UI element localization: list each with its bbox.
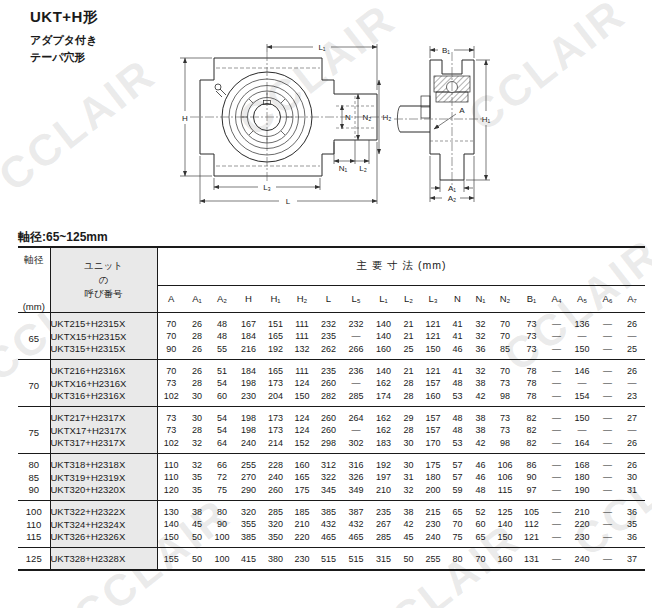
dimension-value-cell: — bbox=[596, 484, 619, 501]
table-group: 65UKT215+H2315X7026481671511112322321402… bbox=[18, 313, 645, 360]
unit-number-cell: UKT318+H2318X bbox=[50, 454, 157, 471]
table-row: 115UKT326+H2326X150501003853502204654652… bbox=[18, 531, 645, 548]
catalog-page: CCLAIR CCLAIR CCLAIR CCLAIR CCLAIR CCLAI… bbox=[0, 0, 652, 608]
dimension-value-cell: 260 bbox=[262, 484, 289, 501]
unit-number-cell: UKT215+H2315X bbox=[50, 313, 157, 330]
dimension-value-cell: 235 bbox=[370, 501, 397, 518]
dimension-value-cell: 55 bbox=[209, 343, 235, 360]
dim-column-header: A₅ bbox=[568, 285, 596, 312]
dimension-value-cell: 38 bbox=[397, 501, 420, 518]
dimension-value-cell: — bbox=[545, 376, 568, 390]
dimension-value-cell: 151 bbox=[262, 313, 289, 330]
dimension-value-cell: 70 bbox=[492, 360, 518, 377]
dimension-value-cell: 236 bbox=[342, 360, 370, 377]
dimension-value-cell: 125 bbox=[492, 501, 518, 518]
dimension-value-cell: 215 bbox=[420, 501, 446, 518]
dimension-value-cell: 57 bbox=[446, 454, 469, 471]
dimension-value-cell: 160 bbox=[492, 548, 518, 571]
table-row: UKT317+H2317X102326424021415229830218330… bbox=[18, 437, 645, 454]
dimension-value-cell: — bbox=[596, 548, 619, 571]
dimension-value-cell: 50 bbox=[397, 548, 420, 571]
dimension-value-cell: 102 bbox=[157, 437, 185, 454]
dimension-value-cell: 100 bbox=[209, 548, 235, 571]
dimension-value-cell: 73 bbox=[518, 329, 545, 343]
table-row: 80UKT318+H2318X1103266255228160312316192… bbox=[18, 454, 645, 471]
dimension-value-cell: — bbox=[545, 313, 568, 330]
shaft-diameter-cell: 80 bbox=[18, 454, 50, 471]
dimension-value-cell: 326 bbox=[342, 470, 370, 484]
dimension-value-cell: 73 bbox=[157, 407, 185, 424]
table-row: 110UKT324+H2324X140459035532021043243226… bbox=[18, 517, 645, 531]
dimension-value-cell: 302 bbox=[342, 437, 370, 454]
dimension-value-cell: 90 bbox=[157, 343, 185, 360]
dimension-value-cell: 131 bbox=[518, 548, 545, 571]
dimension-value-cell: — bbox=[596, 376, 619, 390]
dimension-value-cell: — bbox=[545, 407, 568, 424]
dimension-value-cell: 285 bbox=[342, 390, 370, 407]
dimension-value-cell: 322 bbox=[315, 470, 342, 484]
dimension-value-cell: 82 bbox=[518, 423, 545, 437]
unit-number-cell: UKTX17+H2317X bbox=[50, 423, 157, 437]
page-subtitle-adapter: アダプタ付き bbox=[30, 33, 97, 48]
dimension-value-cell: 216 bbox=[235, 343, 262, 360]
dimension-value-cell: 152 bbox=[289, 437, 315, 454]
dim-column-header: A₁ bbox=[185, 285, 209, 312]
dimension-value-cell: 162 bbox=[370, 376, 397, 390]
dimension-value-cell: 198 bbox=[235, 423, 262, 437]
shaft-diameter-cell: 100 bbox=[18, 501, 50, 518]
dimension-value-cell: 25 bbox=[397, 343, 420, 360]
dimension-value-cell: 184 bbox=[235, 360, 262, 377]
dim-column-header: H bbox=[235, 285, 262, 312]
dimension-value-cell: 90 bbox=[209, 517, 235, 531]
dim-label-h2: H₂ bbox=[383, 113, 392, 122]
dimension-value-cell: — bbox=[596, 407, 619, 424]
dimension-value-cell: — bbox=[596, 423, 619, 437]
dimension-value-cell: 54 bbox=[209, 423, 235, 437]
dimension-value-cell: 214 bbox=[262, 437, 289, 454]
table-row: UKTX15+H2315X702848184165111235—14021121… bbox=[18, 329, 645, 343]
dimension-value-cell: — bbox=[545, 390, 568, 407]
dimension-value-cell: 235 bbox=[315, 360, 342, 377]
dimension-value-cell: 173 bbox=[262, 423, 289, 437]
dim-label-n: N bbox=[345, 113, 351, 122]
dimension-value-cell: 260 bbox=[315, 423, 342, 437]
shaft-diameter-cell: 90 bbox=[18, 484, 50, 501]
dimension-value-cell: 432 bbox=[315, 517, 342, 531]
dim-column-header: B₁ bbox=[518, 285, 545, 312]
table-row: 90UKT320+H2320X1203575290260175345349210… bbox=[18, 484, 645, 501]
dimension-value-cell: 167 bbox=[235, 313, 262, 330]
shaft-diameter-column-header: 軸径 (mm) bbox=[18, 247, 50, 313]
dim-column-header: H₁ bbox=[262, 285, 289, 312]
dimension-value-cell: 60 bbox=[469, 517, 492, 531]
dimension-value-cell: 25 bbox=[619, 343, 645, 360]
dimension-value-cell: 140 bbox=[370, 329, 397, 343]
dimension-value-cell: — bbox=[342, 376, 370, 390]
dimension-value-cell: — bbox=[568, 423, 596, 437]
dimension-value-cell: — bbox=[545, 360, 568, 377]
dimension-value-cell: 64 bbox=[209, 437, 235, 454]
dimension-value-cell: 42 bbox=[469, 390, 492, 407]
table-group: 70UKT216+H2316X7026511841651112352361402… bbox=[18, 360, 645, 407]
dimension-value-cell: 230 bbox=[289, 548, 315, 571]
dimension-value-cell: 66 bbox=[209, 454, 235, 471]
dimension-value-cell: 197 bbox=[370, 470, 397, 484]
dimension-value-cell: 100 bbox=[209, 531, 235, 548]
dimension-value-cell: 232 bbox=[342, 313, 370, 330]
dim-column-header: L₁ bbox=[370, 285, 397, 312]
dimension-value-cell: 41 bbox=[446, 360, 469, 377]
dimension-value-cell: 90 bbox=[518, 470, 545, 484]
dimension-value-cell: 140 bbox=[157, 517, 185, 531]
dimension-value-cell: 316 bbox=[342, 454, 370, 471]
dimension-value-cell: 73 bbox=[492, 423, 518, 437]
unit-number-cell: UKTX15+H2315X bbox=[50, 329, 157, 343]
dimension-value-cell: 465 bbox=[315, 531, 342, 548]
dimension-value-cell: 26 bbox=[185, 360, 209, 377]
dimension-value-cell: 121 bbox=[420, 360, 446, 377]
dimension-table: 軸径 (mm) ユニット の 呼び番号 主 要 寸 法 (mm) AA₁A₂HH… bbox=[18, 246, 645, 571]
page-title: UKT+H形 bbox=[30, 8, 98, 27]
dimension-value-cell: 73 bbox=[492, 407, 518, 424]
table-row: 85UKT319+H2319X1103572270240165322326197… bbox=[18, 470, 645, 484]
dimension-value-cell: 432 bbox=[342, 517, 370, 531]
dim-column-header: H₂ bbox=[289, 285, 315, 312]
unit-number-cell: UKT319+H2319X bbox=[50, 470, 157, 484]
table-row: UKT316+H2316X102306023020415028228517428… bbox=[18, 390, 645, 407]
dimension-value-cell: 48 bbox=[469, 484, 492, 501]
dimension-value-cell: — bbox=[545, 437, 568, 454]
dimension-value-cell: 255 bbox=[420, 548, 446, 571]
dimension-value-cell: 168 bbox=[568, 454, 596, 471]
dimension-value-cell: 31 bbox=[397, 470, 420, 484]
dimension-value-cell: 38 bbox=[469, 376, 492, 390]
dimension-value-cell: 73 bbox=[157, 423, 185, 437]
dimension-value-cell: 111 bbox=[289, 329, 315, 343]
dimension-value-cell: 51 bbox=[209, 360, 235, 377]
dimension-value-cell: 180 bbox=[420, 470, 446, 484]
dimension-value-cell: — bbox=[545, 329, 568, 343]
dimension-value-cell: — bbox=[545, 531, 568, 548]
dimension-value-cell: 29 bbox=[397, 407, 420, 424]
dimension-value-cell: 155 bbox=[157, 548, 185, 571]
dimension-value-cell: 38 bbox=[469, 423, 492, 437]
shaft-diameter-range-heading: 軸径:65~125mm bbox=[18, 229, 108, 246]
dimension-value-cell: 82 bbox=[518, 437, 545, 454]
dimension-value-cell: — bbox=[545, 470, 568, 484]
main-dimensions-header: 主 要 寸 法 (mm) bbox=[157, 247, 645, 285]
dimension-value-cell: 160 bbox=[289, 454, 315, 471]
dimension-value-cell: 42 bbox=[469, 437, 492, 454]
dimension-value-cell: 121 bbox=[420, 329, 446, 343]
dimension-value-cell: 130 bbox=[157, 501, 185, 518]
table-row: 125UKT328+H2328X155501004153802305155153… bbox=[18, 548, 645, 571]
dimension-value-cell: 28 bbox=[185, 423, 209, 437]
dimension-value-cell: 106 bbox=[492, 454, 518, 471]
dimension-value-cell: 210 bbox=[370, 484, 397, 501]
dimension-value-cell: 262 bbox=[315, 343, 342, 360]
dimension-value-cell: 70 bbox=[446, 517, 469, 531]
dimension-value-cell: 48 bbox=[446, 423, 469, 437]
table-row: UKTX17+H2317X732854198173124260—16228157… bbox=[18, 423, 645, 437]
dimension-value-cell: 48 bbox=[446, 407, 469, 424]
dimension-value-cell: 110 bbox=[157, 454, 185, 471]
dimension-value-cell: 21 bbox=[397, 360, 420, 377]
dim-label-n2: N₂ bbox=[363, 113, 372, 122]
dimension-value-cell: 35 bbox=[619, 517, 645, 531]
dimension-value-cell: 173 bbox=[262, 407, 289, 424]
table-row: 70UKT216+H2316X7026511841651112352361402… bbox=[18, 360, 645, 377]
dimension-value-cell: 60 bbox=[209, 390, 235, 407]
unit-number-cell: UKT216+H2316X bbox=[50, 360, 157, 377]
dimension-value-cell: — bbox=[596, 531, 619, 548]
dimension-value-cell: — bbox=[596, 390, 619, 407]
shaft-diameter-cell: 65 bbox=[18, 313, 50, 360]
dimension-value-cell: 30 bbox=[185, 407, 209, 424]
dimension-value-cell: — bbox=[568, 329, 596, 343]
dimension-value-cell: 240 bbox=[235, 437, 262, 454]
dimension-value-cell: 73 bbox=[492, 376, 518, 390]
dimension-value-cell: 85 bbox=[492, 343, 518, 360]
dimension-value-cell: 78 bbox=[518, 376, 545, 390]
dimension-value-cell: 150 bbox=[568, 343, 596, 360]
shaft-diameter-cell: 75 bbox=[18, 407, 50, 454]
dimension-value-cell: 36 bbox=[619, 501, 645, 518]
dimension-value-cell: 23 bbox=[619, 390, 645, 407]
dimension-value-cell: 48 bbox=[209, 313, 235, 330]
shaft-diameter-cell: 85 bbox=[18, 470, 50, 484]
dim-column-header: A₄ bbox=[545, 285, 568, 312]
dimension-value-cell: 465 bbox=[342, 531, 370, 548]
dimension-value-cell: 54 bbox=[209, 376, 235, 390]
dimension-value-cell: 70 bbox=[492, 329, 518, 343]
dimension-value-cell: 110 bbox=[157, 470, 185, 484]
dimension-value-cell: 345 bbox=[315, 484, 342, 501]
dimension-value-cell: 132 bbox=[289, 343, 315, 360]
dimension-value-cell: 170 bbox=[420, 437, 446, 454]
dimension-value-cell: 320 bbox=[262, 517, 289, 531]
dimension-value-cell: 72 bbox=[209, 470, 235, 484]
dimension-value-cell: — bbox=[619, 329, 645, 343]
dimension-value-cell: 154 bbox=[568, 390, 596, 407]
dimension-value-cell: 282 bbox=[315, 390, 342, 407]
dimension-value-cell: — bbox=[545, 423, 568, 437]
dimension-value-cell: 106 bbox=[492, 470, 518, 484]
dimension-value-cell: 26 bbox=[185, 313, 209, 330]
unit-number-cell: UKT326+H2326X bbox=[50, 531, 157, 548]
dimension-value-cell: — bbox=[545, 548, 568, 571]
dimension-value-cell: 355 bbox=[235, 517, 262, 531]
dimension-value-cell: 157 bbox=[420, 376, 446, 390]
dimension-value-cell: 48 bbox=[446, 376, 469, 390]
table-group: 80UKT318+H2318X1103266255228160312316192… bbox=[18, 454, 645, 501]
dimension-value-cell: 140 bbox=[370, 360, 397, 377]
dimension-value-cell: 80 bbox=[209, 501, 235, 518]
dimension-value-cell: 266 bbox=[342, 343, 370, 360]
dimension-value-cell: 230 bbox=[235, 390, 262, 407]
dim-column-header: A₂ bbox=[209, 285, 235, 312]
dimension-value-cell: 260 bbox=[315, 376, 342, 390]
page-subtitle-taper-bore: テーパ穴形 bbox=[30, 50, 86, 65]
dimension-value-cell: 200 bbox=[420, 484, 446, 501]
dimension-value-cell: 70 bbox=[157, 313, 185, 330]
dimension-value-cell: 21 bbox=[397, 329, 420, 343]
dimension-value-cell: 28 bbox=[397, 423, 420, 437]
shaft-diameter-cell: 70 bbox=[18, 360, 50, 407]
dimension-value-cell: 285 bbox=[370, 531, 397, 548]
dimension-value-cell: 26 bbox=[619, 454, 645, 471]
dimension-value-cell: 48 bbox=[209, 329, 235, 343]
dimension-value-cell: 75 bbox=[209, 484, 235, 501]
dimension-value-cell: 32 bbox=[185, 437, 209, 454]
shaft-diameter-cell: 115 bbox=[18, 531, 50, 548]
dim-label-h1: H₁ bbox=[482, 115, 491, 124]
dimension-value-cell: 515 bbox=[342, 548, 370, 571]
dimension-value-cell: 70 bbox=[157, 329, 185, 343]
dimension-value-cell: 32 bbox=[469, 313, 492, 330]
dimension-value-cell: 32 bbox=[185, 454, 209, 471]
dim-label-a: A bbox=[459, 106, 465, 115]
dimension-value-cell: 140 bbox=[370, 313, 397, 330]
dim-label-l: L bbox=[286, 197, 291, 206]
dimension-value-cell: 54 bbox=[209, 407, 235, 424]
dimension-value-cell: 173 bbox=[262, 376, 289, 390]
dim-column-header: L₂ bbox=[397, 285, 420, 312]
dimension-value-cell: 28 bbox=[185, 329, 209, 343]
table-row: 75UKT217+H2317X7330541981731242602641622… bbox=[18, 407, 645, 424]
unit-number-cell: UKT328+H2328X bbox=[50, 548, 157, 571]
dimension-value-cell: — bbox=[342, 329, 370, 343]
dimension-value-cell: 45 bbox=[185, 517, 209, 531]
dimension-value-cell: 30 bbox=[619, 470, 645, 484]
dimension-value-cell: — bbox=[596, 437, 619, 454]
side-dimensions bbox=[430, 46, 490, 202]
dimension-value-cell: 112 bbox=[518, 517, 545, 531]
dimension-value-cell: 267 bbox=[370, 517, 397, 531]
dimension-value-cell: 150 bbox=[157, 531, 185, 548]
dimension-value-cell: 75 bbox=[446, 531, 469, 548]
dim-label-a1: A₁ bbox=[448, 184, 456, 193]
shaft-diameter-cell: 125 bbox=[18, 548, 50, 571]
dim-label-l3: L₃ bbox=[263, 183, 271, 192]
dimension-value-cell: 240 bbox=[262, 470, 289, 484]
dim-column-header: L₅ bbox=[342, 285, 370, 312]
dim-label-h: H bbox=[182, 114, 188, 123]
dimension-value-cell: 150 bbox=[568, 407, 596, 424]
dimension-value-cell: — bbox=[619, 423, 645, 437]
dimension-value-cell: 78 bbox=[518, 360, 545, 377]
table-group: 125UKT328+H2328X155501004153802305155153… bbox=[18, 548, 645, 571]
dimension-value-cell: 230 bbox=[420, 517, 446, 531]
dimension-value-cell: 65 bbox=[469, 531, 492, 548]
dimension-value-cell: 174 bbox=[370, 390, 397, 407]
dimension-value-cell: — bbox=[596, 470, 619, 484]
dimension-value-cell: 320 bbox=[235, 501, 262, 518]
table-row: 65UKT215+H2315X7026481671511112322321402… bbox=[18, 313, 645, 330]
dimension-value-cell: 105 bbox=[518, 501, 545, 518]
dimension-value-cell: 255 bbox=[235, 454, 262, 471]
dimension-value-cell: 50 bbox=[185, 548, 209, 571]
unit-number-cell: UKT322+H2322X bbox=[50, 501, 157, 518]
dimension-value-cell: 70 bbox=[157, 360, 185, 377]
dim-column-header: L bbox=[315, 285, 342, 312]
dimension-value-cell: 160 bbox=[420, 390, 446, 407]
dimension-value-cell: 230 bbox=[568, 531, 596, 548]
dimension-value-cell: 45 bbox=[397, 531, 420, 548]
dimension-value-cell: 35 bbox=[185, 484, 209, 501]
dimension-value-cell: 240 bbox=[568, 548, 596, 571]
side-centerlines bbox=[394, 52, 484, 188]
dimension-value-cell: 315 bbox=[370, 548, 397, 571]
dimension-value-cell: 111 bbox=[289, 313, 315, 330]
unit-label: ユニット bbox=[84, 260, 123, 271]
dimension-value-cell: 41 bbox=[446, 313, 469, 330]
dimension-value-cell: 31 bbox=[619, 484, 645, 501]
dimension-value-cell: 80 bbox=[446, 548, 469, 571]
dimension-value-cell: 98 bbox=[492, 437, 518, 454]
dimension-value-cell: 165 bbox=[262, 360, 289, 377]
dimension-value-cell: 30 bbox=[397, 454, 420, 471]
dimension-value-cell: 30 bbox=[185, 390, 209, 407]
dimension-value-cell: 198 bbox=[235, 407, 262, 424]
dimension-value-cell: — bbox=[568, 376, 596, 390]
dim-column-header: N₁ bbox=[469, 285, 492, 312]
table-row: UKTX16+H2316X732854198173124260—16228157… bbox=[18, 376, 645, 390]
unit-number-cell: UKT217+H2317X bbox=[50, 407, 157, 424]
dimension-value-cell: 210 bbox=[289, 517, 315, 531]
dimension-value-cell: 50 bbox=[185, 531, 209, 548]
dimension-value-cell: 26 bbox=[185, 343, 209, 360]
dimension-value-cell: — bbox=[545, 343, 568, 360]
dimension-value-cell: 28 bbox=[185, 376, 209, 390]
dimension-value-cell: — bbox=[596, 454, 619, 471]
dimension-value-cell: 380 bbox=[262, 548, 289, 571]
dimension-value-cell: 37 bbox=[619, 548, 645, 571]
dimension-value-cell: 124 bbox=[289, 423, 315, 437]
dimension-value-cell: — bbox=[596, 313, 619, 330]
dim-label-a2: A₂ bbox=[448, 194, 456, 203]
dimension-value-cell: 42 bbox=[397, 517, 420, 531]
dimension-value-cell: 184 bbox=[235, 329, 262, 343]
dimension-value-cell: 124 bbox=[289, 407, 315, 424]
technical-drawing: L₁ H N N₂ H₂ N₁ L₂ L₃ L bbox=[172, 28, 512, 226]
dimension-value-cell: 350 bbox=[262, 531, 289, 548]
dimension-value-cell: 82 bbox=[518, 407, 545, 424]
dimension-value-cell: 35 bbox=[185, 470, 209, 484]
dimension-value-cell: 160 bbox=[370, 343, 397, 360]
dimension-value-cell: 285 bbox=[262, 501, 289, 518]
dimension-value-cell: 204 bbox=[262, 390, 289, 407]
dimension-value-cell: 26 bbox=[619, 360, 645, 377]
dimension-value-cell: — bbox=[596, 343, 619, 360]
dimension-value-cell: 121 bbox=[420, 313, 446, 330]
dimension-value-cell: 198 bbox=[235, 376, 262, 390]
dimension-value-cell: 21 bbox=[397, 313, 420, 330]
dimension-value-cell: 111 bbox=[289, 360, 315, 377]
number-label: 呼び番号 bbox=[84, 288, 122, 299]
dimension-value-cell: 210 bbox=[568, 501, 596, 518]
watermark: CCLAIR bbox=[0, 49, 165, 202]
dim-label-b1: B₁ bbox=[442, 46, 450, 55]
table-row: 100UKT322+H2322X130388032028518538538723… bbox=[18, 501, 645, 518]
dim-label-n1: N₁ bbox=[339, 164, 348, 173]
dimension-value-cell: 28 bbox=[397, 390, 420, 407]
dimension-value-cell: 53 bbox=[446, 390, 469, 407]
front-centerlines bbox=[190, 52, 386, 182]
dimension-value-cell: 26 bbox=[619, 313, 645, 330]
dimension-value-cell: 70 bbox=[469, 548, 492, 571]
